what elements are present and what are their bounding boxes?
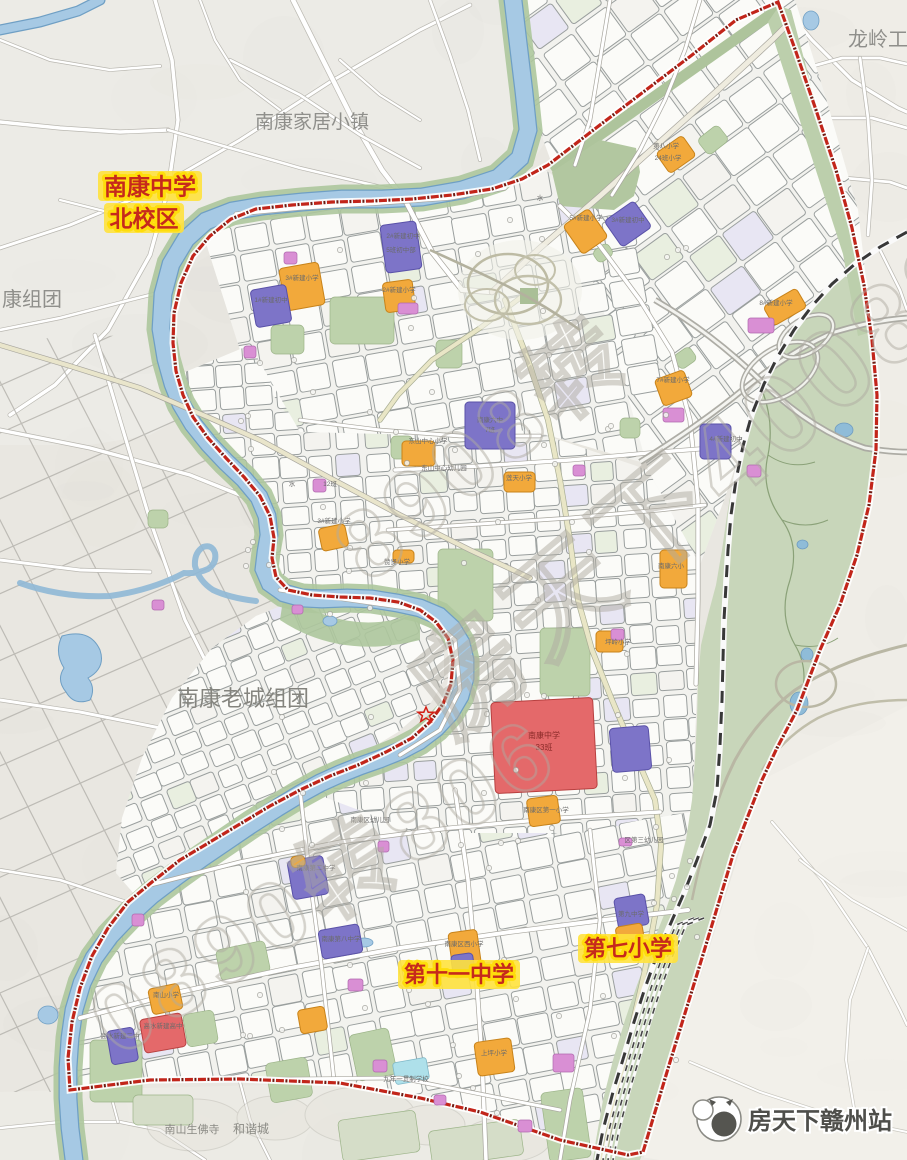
svg-text:3#新建小学: 3#新建小学	[285, 273, 319, 282]
svg-text:南康老城组团: 南康老城组团	[177, 686, 309, 711]
svg-text:北校区: 北校区	[110, 205, 179, 231]
svg-text:南山生佛寺: 南山生佛寺	[165, 1122, 220, 1136]
svg-text:水: 水	[289, 479, 296, 488]
svg-text:康组团: 康组团	[2, 288, 62, 311]
svg-text:水: 水	[537, 193, 544, 202]
svg-text:24班小学: 24班小学	[655, 153, 682, 162]
svg-text:龙岭工: 龙岭工	[848, 28, 907, 51]
svg-text:第八小学: 第八小学	[653, 141, 680, 150]
svg-text:3#新建初中: 3#新建初中	[611, 215, 644, 224]
svg-text:7#新建小学: 7#新建小学	[656, 375, 690, 384]
svg-text:房天下赣州站: 房天下赣州站	[748, 1107, 892, 1135]
svg-text:上坪小学: 上坪小学	[481, 1048, 508, 1057]
svg-text:南康中学: 南康中学	[104, 173, 196, 199]
svg-text:第九中学: 第九中学	[618, 909, 645, 918]
svg-text:第十一中学: 第十一中学	[404, 962, 514, 987]
svg-text:南康区西小学: 南康区西小学	[445, 939, 485, 948]
svg-text:南康家居小镇: 南康家居小镇	[255, 111, 369, 133]
svg-text:2#新建初中: 2#新建初中	[386, 231, 419, 240]
svg-text:九年一贯制学校: 九年一贯制学校	[383, 1074, 429, 1083]
svg-text:5#新建小学: 5#新建小学	[569, 213, 603, 222]
svg-text:12班: 12班	[323, 479, 337, 488]
svg-text:区第三幼儿园: 区第三幼儿园	[625, 835, 664, 844]
svg-text:8#新建小学: 8#新建小学	[759, 298, 793, 307]
svg-text:2#新建小学: 2#新建小学	[382, 285, 416, 294]
svg-text:第七小学: 第七小学	[584, 936, 672, 961]
svg-text:1#新建初中: 1#新建初中	[254, 295, 287, 304]
svg-text:和谐城: 和谐城	[233, 1122, 269, 1136]
svg-text:5班初中部: 5班初中部	[386, 245, 416, 254]
